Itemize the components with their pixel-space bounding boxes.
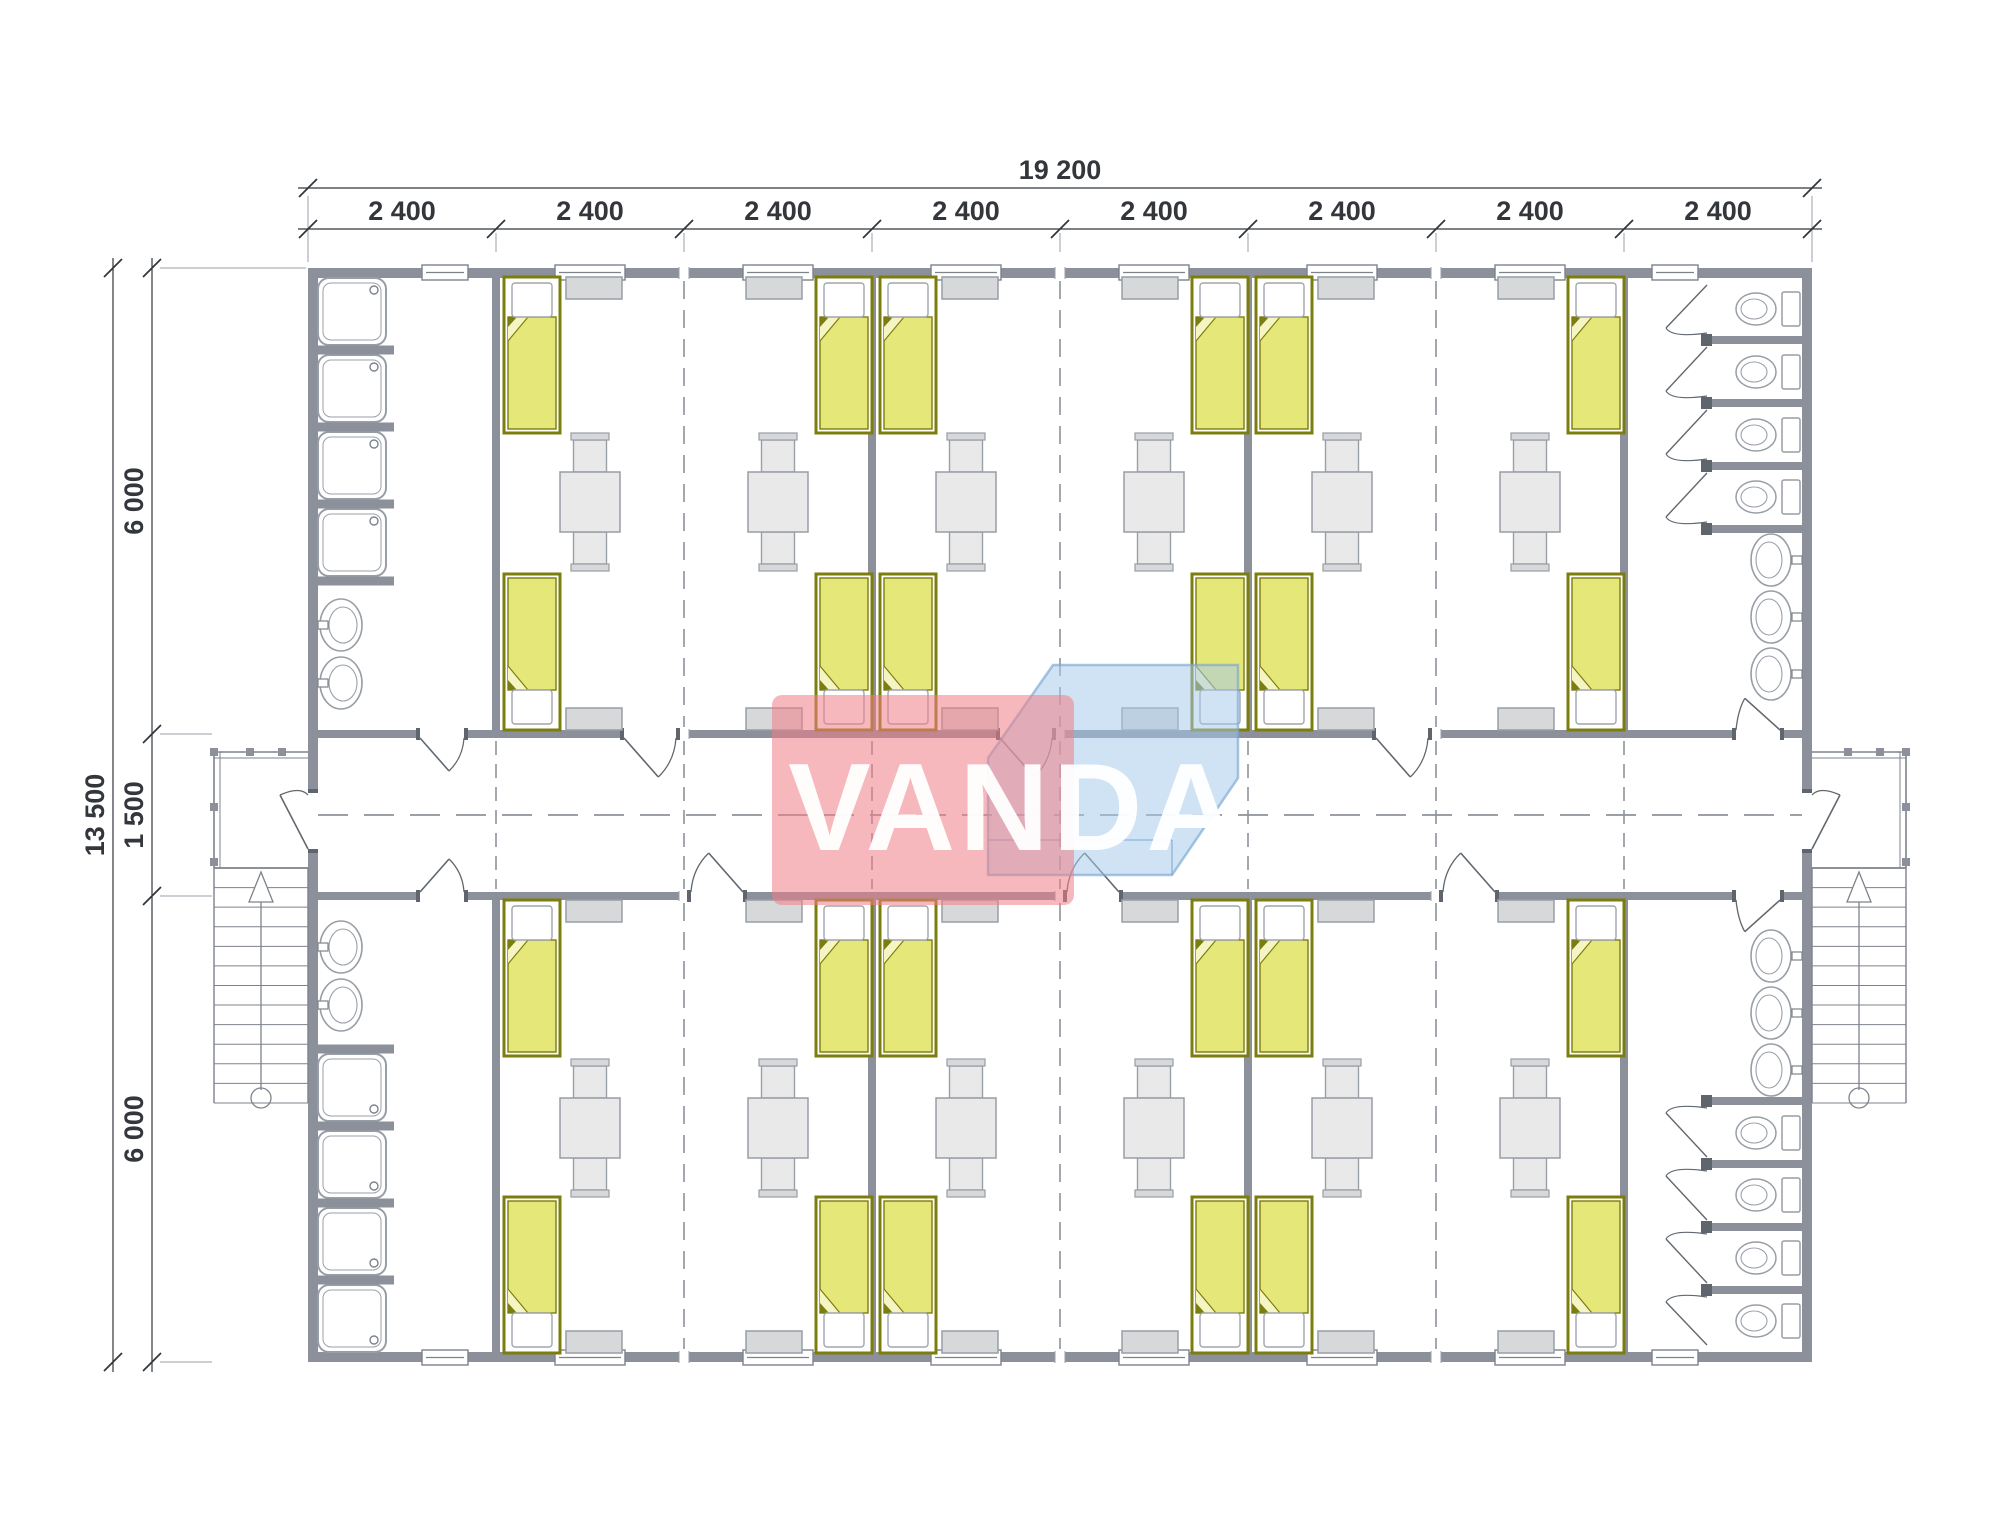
bedside-cabinet xyxy=(1498,900,1554,922)
chair-seat xyxy=(1138,532,1171,564)
chair-seat xyxy=(1514,1066,1547,1098)
door-swing-arc xyxy=(1736,900,1745,932)
table xyxy=(748,1098,808,1158)
door-leaf xyxy=(1461,853,1495,892)
toilet-stall-divider xyxy=(1712,1097,1802,1105)
chair-backrest xyxy=(1135,564,1173,571)
wash-basin xyxy=(318,599,362,651)
shower-tray-rim xyxy=(318,432,386,499)
toilet-stall-divider xyxy=(1712,462,1802,470)
basin-tap xyxy=(1792,613,1802,621)
chair-backrest xyxy=(1511,1190,1549,1197)
bed-blanket xyxy=(508,578,556,690)
door-leaf xyxy=(280,795,308,849)
door-opening xyxy=(1067,891,1119,902)
bed-blanket xyxy=(1572,578,1620,690)
bedside-cabinet xyxy=(1498,1331,1554,1353)
door-jamb xyxy=(1802,849,1812,853)
toilet-stall-door-post xyxy=(1701,397,1712,409)
shower-stall-divider xyxy=(318,346,394,355)
bed-pillow xyxy=(1264,690,1304,724)
chair-seat xyxy=(1326,1066,1359,1098)
bed-pillow xyxy=(888,283,928,317)
bed-blanket xyxy=(1572,1201,1620,1313)
porch-rail-post xyxy=(1902,858,1910,866)
chair-backrest xyxy=(947,1190,985,1197)
watermark: VANDA xyxy=(772,665,1240,905)
bed xyxy=(880,1197,936,1353)
door-jamb xyxy=(1780,728,1784,740)
shower-tray-rim xyxy=(318,1208,386,1275)
shower-tray xyxy=(318,1285,386,1352)
chair-seat xyxy=(574,440,607,472)
table xyxy=(1124,1098,1184,1158)
shower-stall-divider xyxy=(318,1122,394,1131)
dimension-label-top-total: 19 200 xyxy=(1019,155,1102,185)
entry-porch-left xyxy=(210,748,318,868)
shower-tray xyxy=(318,1208,386,1275)
table xyxy=(748,472,808,532)
toilet xyxy=(1736,1241,1800,1275)
chair-seat xyxy=(950,1158,983,1190)
door-leaf xyxy=(1745,900,1780,932)
chair-backrest xyxy=(571,1190,609,1197)
table-with-chairs xyxy=(748,1059,808,1197)
bed-pillow xyxy=(824,1313,864,1347)
door-opening xyxy=(1802,793,1812,849)
dimension-label-top-segment: 2 400 xyxy=(1684,196,1752,226)
bed xyxy=(1568,1197,1624,1353)
door-leaf xyxy=(1376,738,1410,777)
door-opening xyxy=(420,729,464,740)
bed-blanket xyxy=(1196,1201,1244,1313)
chair-backrest xyxy=(759,564,797,571)
chair-seat xyxy=(1138,440,1171,472)
table xyxy=(560,1098,620,1158)
door-swing-arc xyxy=(1443,853,1461,892)
porch-rail-post xyxy=(278,748,286,756)
chair-backrest xyxy=(759,1059,797,1066)
table-with-chairs xyxy=(748,433,808,571)
chair-seat xyxy=(762,1066,795,1098)
bed xyxy=(1192,277,1248,433)
chair-seat xyxy=(950,440,983,472)
dimension-label-top-segment: 2 400 xyxy=(1120,196,1188,226)
chair-backrest xyxy=(947,1059,985,1066)
bed xyxy=(1192,900,1248,1056)
table-with-chairs xyxy=(1124,433,1184,571)
bed xyxy=(816,277,872,433)
shower-stall-divider xyxy=(318,1276,394,1285)
bed-pillow xyxy=(512,690,552,724)
bed-blanket xyxy=(1196,317,1244,429)
stall-door-arc xyxy=(1666,454,1707,461)
chair-backrest xyxy=(1323,1190,1361,1197)
door-leaf xyxy=(1745,698,1780,730)
chair-backrest xyxy=(1511,564,1549,571)
bed-blanket xyxy=(884,1201,932,1313)
bedside-cabinet xyxy=(566,1331,622,1353)
stall-door-arc xyxy=(1666,1106,1707,1113)
toilet xyxy=(1736,418,1800,452)
shower-tray xyxy=(318,355,386,422)
wash-basin xyxy=(318,979,362,1031)
toilet-tank xyxy=(1782,1116,1800,1150)
bed-pillow xyxy=(1264,1313,1304,1347)
module-joint-mark xyxy=(1431,729,1441,739)
stair-walk-line-end xyxy=(251,1088,271,1108)
bedside-cabinet xyxy=(1498,708,1554,730)
stall-door-leaf xyxy=(1666,473,1707,517)
chair-backrest xyxy=(1323,564,1361,571)
shower-tray-rim xyxy=(318,355,386,422)
bed-blanket xyxy=(1260,1201,1308,1313)
table xyxy=(1500,1098,1560,1158)
shower-tray xyxy=(318,509,386,576)
table-with-chairs xyxy=(1312,433,1372,571)
toilet-stall-door-post xyxy=(1701,460,1712,472)
door-swing-arc xyxy=(1736,698,1745,730)
door-opening xyxy=(691,891,743,902)
bed-blanket xyxy=(884,940,932,1052)
door-leaf xyxy=(1812,795,1840,849)
stall-door-leaf xyxy=(1666,410,1707,454)
stall-door-leaf xyxy=(1666,285,1707,328)
dimension-label-top-segment: 2 400 xyxy=(556,196,624,226)
shower-tray-rim xyxy=(318,1285,386,1352)
module-joint-mark xyxy=(679,729,689,739)
stall-door-leaf xyxy=(1666,1302,1707,1345)
chair-backrest xyxy=(947,564,985,571)
shower-tray xyxy=(318,278,386,345)
bed-blanket xyxy=(1572,317,1620,429)
door-leaf xyxy=(624,738,658,777)
bed xyxy=(1256,900,1312,1056)
bed-blanket xyxy=(820,317,868,429)
dimension-label-top-segment: 2 400 xyxy=(1496,196,1564,226)
toilet-stall-door-post xyxy=(1701,523,1712,535)
table-with-chairs xyxy=(560,433,620,571)
door-swing-arc xyxy=(1812,791,1840,796)
toilet-stall-divider xyxy=(1712,1286,1802,1294)
stall-door-leaf xyxy=(1666,347,1707,391)
chair-backrest xyxy=(759,1190,797,1197)
toilet-bowl xyxy=(1736,481,1776,513)
table-with-chairs xyxy=(936,1059,996,1197)
door-opening xyxy=(308,793,318,849)
toilet xyxy=(1736,1116,1800,1150)
table-with-chairs xyxy=(936,433,996,571)
toilet xyxy=(1736,1304,1800,1338)
dimension-label-left-segment: 1 500 xyxy=(119,781,149,849)
stall-door-arc xyxy=(1666,391,1707,398)
toilet-stall-door-post xyxy=(1701,1158,1712,1170)
chair-seat xyxy=(762,1158,795,1190)
bed-pillow xyxy=(1576,906,1616,940)
chair-seat xyxy=(950,532,983,564)
shower-stall-divider xyxy=(318,423,394,432)
bed xyxy=(1256,277,1312,433)
bedside-cabinet xyxy=(566,277,622,299)
toilet-stall-divider xyxy=(1712,1160,1802,1168)
chair-seat xyxy=(574,1066,607,1098)
toilet-tank xyxy=(1782,355,1800,389)
bedside-cabinet xyxy=(566,900,622,922)
toilet-tank xyxy=(1782,1241,1800,1275)
toilet-tank xyxy=(1782,418,1800,452)
module-joint-mark xyxy=(1055,267,1065,279)
stair-direction-arrow xyxy=(249,872,273,902)
floor-plan-svg: 19 2002 4002 4002 4002 4002 4002 4002 40… xyxy=(0,0,2000,1539)
bed-pillow xyxy=(1576,690,1616,724)
chair-backrest xyxy=(571,1059,609,1066)
chair-backrest xyxy=(1323,433,1361,440)
door-jamb xyxy=(416,890,420,902)
basin-tap xyxy=(1792,1009,1802,1017)
chair-seat xyxy=(574,532,607,564)
door-swing-arc xyxy=(658,738,676,777)
module-joint-mark xyxy=(1431,1351,1441,1363)
stall-door-leaf xyxy=(1666,1113,1707,1157)
shower-tray-rim xyxy=(318,278,386,345)
porch-rail-post xyxy=(210,748,218,756)
toilet-stall-door-post xyxy=(1701,1095,1712,1107)
bed-blanket xyxy=(884,578,932,690)
chair-seat xyxy=(1138,1066,1171,1098)
bed xyxy=(880,277,936,433)
toilet-tank xyxy=(1782,292,1800,326)
watermark-text: VANDA xyxy=(788,739,1240,877)
stall-door-leaf xyxy=(1666,1239,1707,1283)
bed-blanket xyxy=(1260,317,1308,429)
bedside-cabinet xyxy=(566,708,622,730)
door-jamb xyxy=(1780,890,1784,902)
toilet-tank xyxy=(1782,1304,1800,1338)
dimension-label-top-segment: 2 400 xyxy=(744,196,812,226)
bed xyxy=(504,900,560,1056)
bed-pillow xyxy=(1264,283,1304,317)
toilet-stall-divider xyxy=(1712,525,1802,533)
bedside-cabinet xyxy=(746,1331,802,1353)
bed xyxy=(1568,277,1624,433)
porch-rail-post xyxy=(1902,803,1910,811)
basin-tap xyxy=(318,621,328,629)
stairs-left xyxy=(214,868,308,1108)
toilet-bowl xyxy=(1736,1305,1776,1337)
bed-blanket xyxy=(508,940,556,1052)
chair-seat xyxy=(1514,440,1547,472)
chair-backrest xyxy=(1323,1059,1361,1066)
toilet-stall-divider xyxy=(1712,336,1802,344)
toilet-bowl xyxy=(1736,1117,1776,1149)
entry-porch-right xyxy=(1802,748,1910,868)
bed xyxy=(504,1197,560,1353)
table xyxy=(1500,472,1560,532)
door-opening xyxy=(624,729,676,740)
page: 19 2002 4002 4002 4002 4002 4002 4002 40… xyxy=(0,0,2000,1539)
chair-backrest xyxy=(571,564,609,571)
door-swing-arc xyxy=(449,859,464,892)
wash-basin xyxy=(1751,1044,1802,1096)
stair-walk-line-end xyxy=(1849,1088,1869,1108)
bed-blanket xyxy=(1260,940,1308,1052)
stairs-right xyxy=(1812,868,1906,1108)
chair-backrest xyxy=(1135,1059,1173,1066)
toilet-stall-door-post xyxy=(1701,1221,1712,1233)
chair-seat xyxy=(1138,1158,1171,1190)
bed-pillow xyxy=(1576,283,1616,317)
table-with-chairs xyxy=(1124,1059,1184,1197)
shower-tray-rim xyxy=(318,1131,386,1198)
bedside-cabinet xyxy=(942,277,998,299)
bedside-cabinet xyxy=(1122,1331,1178,1353)
toilet xyxy=(1736,1178,1800,1212)
door-opening xyxy=(1376,729,1428,740)
bedside-cabinet xyxy=(1122,277,1178,299)
toilet-bowl xyxy=(1736,293,1776,325)
dimension-label-top-segment: 2 400 xyxy=(1308,196,1376,226)
door-jamb xyxy=(1802,789,1812,793)
door-leaf xyxy=(420,859,449,892)
bed-blanket xyxy=(508,317,556,429)
bedside-cabinet xyxy=(1318,708,1374,730)
shower-stall-divider xyxy=(318,1045,394,1054)
toilet-bowl xyxy=(1736,1242,1776,1274)
toilet-bowl xyxy=(1736,356,1776,388)
bed-blanket xyxy=(820,940,868,1052)
bedside-cabinet xyxy=(1318,900,1374,922)
bed-pillow xyxy=(1576,1313,1616,1347)
bedside-cabinet xyxy=(1498,277,1554,299)
bed-pillow xyxy=(1264,906,1304,940)
toilet-tank xyxy=(1782,480,1800,514)
door-jamb xyxy=(308,789,318,793)
bed xyxy=(816,900,872,1056)
basin-tap xyxy=(1792,556,1802,564)
toilet-stall-divider xyxy=(1712,1223,1802,1231)
bed-pillow xyxy=(512,283,552,317)
door-swing-arc xyxy=(449,738,464,771)
chair-backrest xyxy=(1511,1059,1549,1066)
table xyxy=(936,472,996,532)
chair-backrest xyxy=(1135,1190,1173,1197)
bed-blanket xyxy=(820,1201,868,1313)
bed-pillow xyxy=(512,1313,552,1347)
module-joint-mark xyxy=(679,267,689,279)
toilet-bowl xyxy=(1736,1179,1776,1211)
bed xyxy=(504,574,560,730)
bed-pillow xyxy=(1200,283,1240,317)
stall-door-arc xyxy=(1666,1232,1707,1239)
bedside-cabinet xyxy=(1318,1331,1374,1353)
basin-tap xyxy=(1792,1066,1802,1074)
bedside-cabinet xyxy=(1122,900,1178,922)
bed xyxy=(816,1197,872,1353)
chair-seat xyxy=(950,1066,983,1098)
chair-backrest xyxy=(1135,433,1173,440)
basin-tap xyxy=(1792,952,1802,960)
door-opening xyxy=(1736,891,1780,902)
toilet xyxy=(1736,355,1800,389)
stall-door-arc xyxy=(1666,1295,1707,1302)
table-with-chairs xyxy=(1500,1059,1560,1197)
table xyxy=(560,472,620,532)
stall-door-leaf xyxy=(1666,1176,1707,1220)
shower-stall-divider xyxy=(318,577,394,586)
bed-pillow xyxy=(1200,1313,1240,1347)
window xyxy=(422,265,468,280)
table-with-chairs xyxy=(1312,1059,1372,1197)
wash-basin xyxy=(1751,987,1802,1039)
porch-rail-post xyxy=(1876,748,1884,756)
shower-stall-divider xyxy=(318,1199,394,1208)
wash-basin xyxy=(1751,591,1802,643)
stall-door-arc xyxy=(1666,328,1707,335)
door-swing-arc xyxy=(1410,738,1428,777)
stall-door-arc xyxy=(1666,1169,1707,1176)
dimension-label-left-segment: 6 000 xyxy=(119,467,149,535)
toilet xyxy=(1736,480,1800,514)
door-swing-arc xyxy=(280,791,308,796)
bed-blanket xyxy=(508,1201,556,1313)
bed xyxy=(504,277,560,433)
door-jamb xyxy=(416,728,420,740)
table xyxy=(1124,472,1184,532)
bed-blanket xyxy=(884,317,932,429)
toilet-bowl xyxy=(1736,419,1776,451)
chair-seat xyxy=(574,1158,607,1190)
window xyxy=(1652,1350,1698,1365)
bed xyxy=(1256,1197,1312,1353)
basin-tap xyxy=(318,1001,328,1009)
toilet-stall-door-post xyxy=(1701,1284,1712,1296)
chair-seat xyxy=(1326,440,1359,472)
bed xyxy=(1568,900,1624,1056)
basin-tap xyxy=(1792,670,1802,678)
bedside-cabinet xyxy=(746,277,802,299)
bed-pillow xyxy=(824,283,864,317)
table-with-chairs xyxy=(1500,433,1560,571)
shower-stall-divider xyxy=(318,500,394,509)
toilet xyxy=(1736,292,1800,326)
bed-pillow xyxy=(888,906,928,940)
stair-direction-arrow xyxy=(1847,872,1871,902)
porch-rail-post xyxy=(210,803,218,811)
chair-seat xyxy=(762,440,795,472)
room-divider-wall xyxy=(492,278,500,730)
toilet-stall-door-post xyxy=(1701,334,1712,346)
porch-rail-post xyxy=(1844,748,1852,756)
dimension-label-left-segment: 6 000 xyxy=(119,1095,149,1163)
module-joint-mark xyxy=(1431,267,1441,279)
dimension-label-top-segment: 2 400 xyxy=(932,196,1000,226)
chair-backrest xyxy=(947,433,985,440)
wash-basin xyxy=(1751,648,1802,700)
chair-seat xyxy=(1514,1158,1547,1190)
wash-basin xyxy=(1751,534,1802,586)
room-divider-wall xyxy=(492,900,500,1352)
basin-tap xyxy=(318,679,328,687)
door-jamb xyxy=(308,849,318,853)
bed xyxy=(1568,574,1624,730)
bed xyxy=(880,900,936,1056)
shower-tray-rim xyxy=(318,1054,386,1121)
bed-pillow xyxy=(888,1313,928,1347)
dimension-label-top-segment: 2 400 xyxy=(368,196,436,226)
chair-backrest xyxy=(571,433,609,440)
bed-pillow xyxy=(824,906,864,940)
chair-backrest xyxy=(1511,433,1549,440)
